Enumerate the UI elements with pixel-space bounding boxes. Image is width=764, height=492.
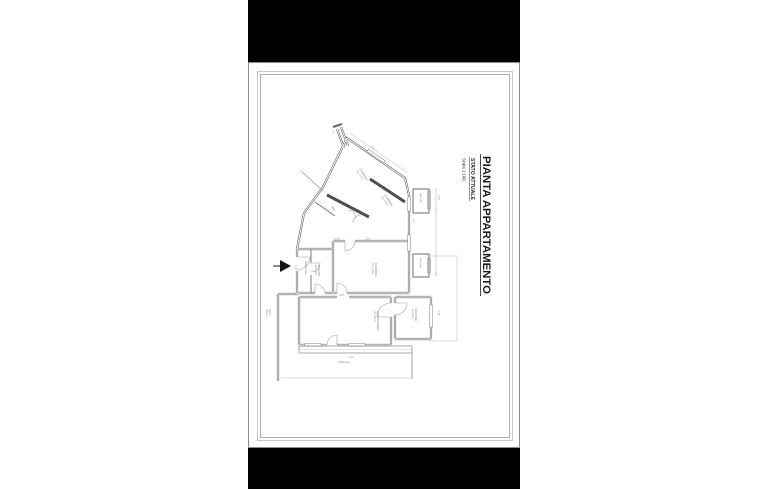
entrance-arrow-icon [273,260,291,272]
plan-status: STATO ATTUALE [469,158,475,201]
room-label: RIP. [330,205,337,212]
svg-text:SCALA: SCALA [265,309,268,317]
svg-text:2,80: 2,80 [437,311,440,316]
svg-text:BALCONE: BALCONE [419,193,422,204]
svg-text:3,50: 3,50 [365,238,370,241]
svg-text:mq 11,40: mq 11,40 [371,263,375,274]
reference-line [301,171,323,191]
scanned-plan-page: CAMERA mq 14,20 CAMERA mq 12,60 RIP. BAG… [248,62,520,448]
dimension-lines [350,133,438,277]
room-label: CAMERA mq 12,60 [380,193,393,208]
room-label: CAMERA mq 14,20 [355,167,368,182]
svg-text:mq 4,80: mq 4,80 [314,265,318,275]
interior-partitions [311,202,335,293]
svg-text:mq 8,90: mq 8,90 [411,309,415,319]
svg-text:1,20: 1,20 [294,265,297,270]
svg-text:3,60: 3,60 [349,356,354,359]
dimension-texts: 3,95 1,10 4,10 1,30 2,45 3,50 1,20 4,95 … [294,129,440,359]
sheet-frame-outer [258,72,513,441]
title-block: PIANTA APPARTAMENTO STATO ATTUALE Scala … [462,154,493,296]
room-label: BAGNO mq 4,80 [314,265,321,277]
svg-text:4,95: 4,95 [339,294,344,297]
structural-walls [327,179,405,217]
floor-plan-drawing: CAMERA mq 14,20 CAMERA mq 12,60 RIP. BAG… [249,63,521,449]
plan-title: PIANTA APPARTAMENTO [480,156,492,294]
svg-text:RIP.: RIP. [330,205,337,212]
room-label: BALCONE [419,258,422,269]
room-label: CUCINA mq 8,90 [411,309,418,321]
svg-text:INGRESSO: INGRESSO [304,261,307,274]
svg-text:mq 18,70: mq 18,70 [373,311,377,322]
stairwell-label: VANO SCALA [265,309,271,317]
plan-scale: Scala 1:100 [462,158,467,181]
svg-text:2,45: 2,45 [335,238,340,241]
svg-text:4,10: 4,10 [412,218,415,223]
svg-text:1,30: 1,30 [437,195,440,200]
balcony-label: Balcone [339,360,350,364]
svg-text:1,10: 1,10 [331,129,336,135]
room-label: INGRESSO [304,261,307,274]
exterior-walls [278,124,431,381]
room-label: CAMERA mq 11,40 [371,263,378,276]
svg-text:BALCONE: BALCONE [419,258,422,269]
room-label: SOGGIORNO mq 18,70 [373,311,380,331]
balcony-strip [299,346,412,379]
room-label: BALCONE [419,193,422,204]
